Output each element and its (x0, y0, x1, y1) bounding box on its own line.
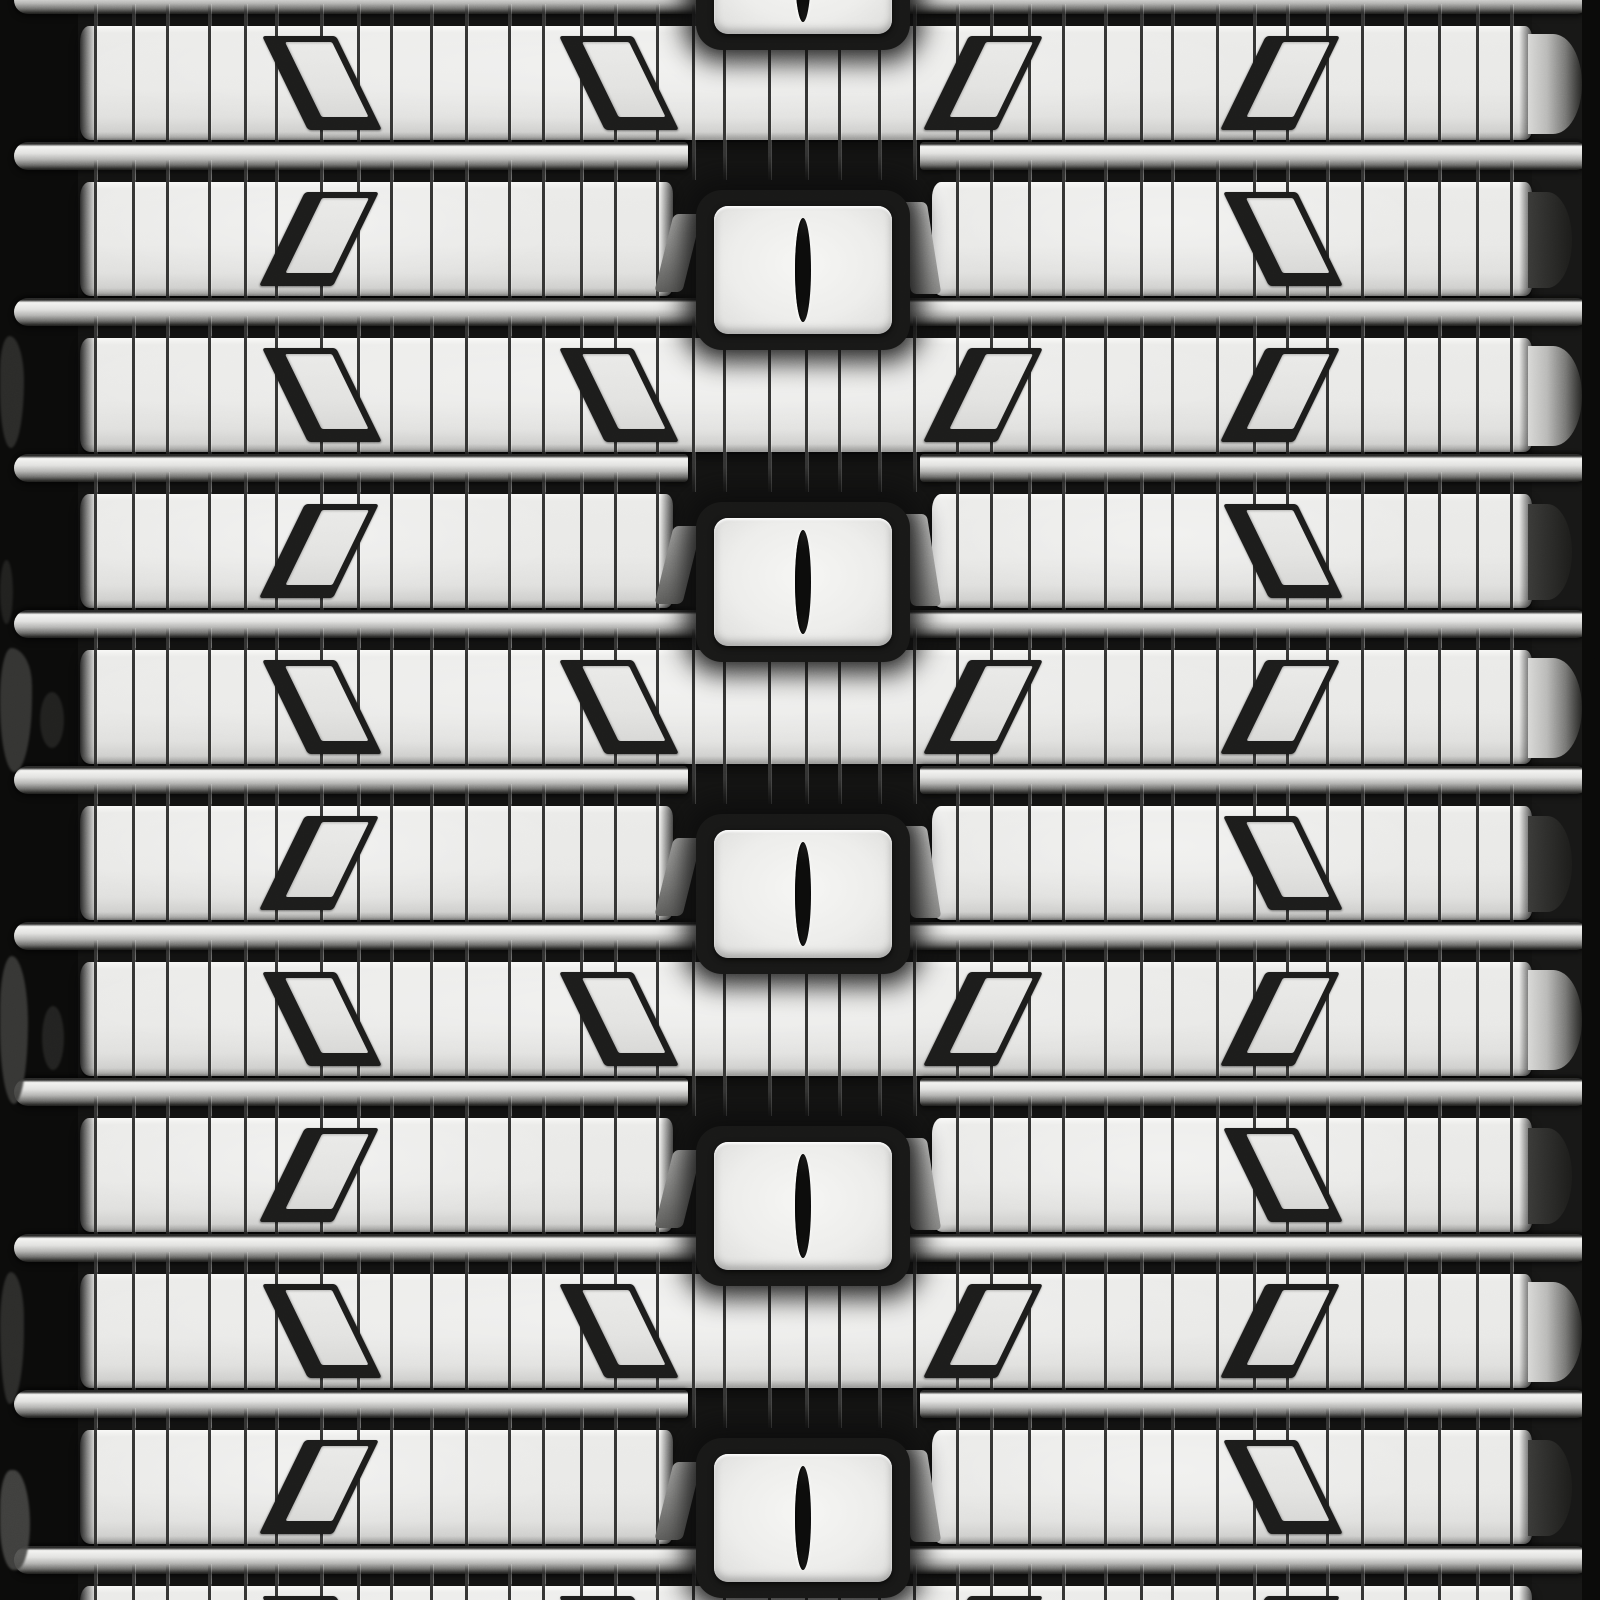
cross-rail (14, 1078, 688, 1106)
sipe-line (1216, 1564, 1219, 1600)
sipe-line (1438, 1564, 1441, 1600)
cross-rail (14, 1390, 688, 1418)
sipe-line (913, 940, 916, 1116)
sipe-line (692, 1252, 695, 1428)
sipe-line (1286, 1564, 1289, 1600)
rubber-blob (0, 560, 13, 624)
drive-lug-slit (795, 218, 811, 322)
sipe-line (542, 1564, 545, 1600)
sipe-line (94, 1564, 97, 1600)
sipe-line (275, 1564, 278, 1600)
sipe-line (614, 1564, 617, 1600)
sipe-line (956, 1564, 959, 1600)
drive-lug-slit (795, 1466, 811, 1570)
sipe-line (1171, 1564, 1174, 1600)
cross-rail (14, 766, 688, 794)
sipe-line (913, 1564, 916, 1600)
sipe-line (692, 940, 695, 1116)
sipe-line (508, 1564, 511, 1600)
sipe-line (913, 316, 916, 492)
sipe-line (390, 1564, 393, 1600)
sipe-line (692, 1564, 695, 1600)
sipe-line (692, 316, 695, 492)
sipe-line (580, 1564, 583, 1600)
cross-rail (14, 142, 688, 170)
sipe-line (913, 4, 916, 180)
sipe-line (1140, 1564, 1143, 1600)
track-right-edge (1582, 0, 1600, 1600)
sipe-line (320, 1564, 323, 1600)
sipe-line (913, 628, 916, 804)
sipe-line (1404, 1564, 1407, 1600)
drive-lug-slit (795, 530, 811, 634)
sipe-line (1253, 1564, 1256, 1600)
sipe-line (244, 1564, 247, 1600)
sipe-line (1326, 1564, 1329, 1600)
sipe-line (430, 1564, 433, 1600)
sipe-line (357, 1564, 360, 1600)
sipe-line (132, 1564, 135, 1600)
sipe-line (692, 628, 695, 804)
sipe-line (1062, 1564, 1065, 1600)
sipe-line (208, 1564, 211, 1600)
drive-lug-slit (795, 1154, 811, 1258)
rubber-blob (42, 1006, 64, 1070)
sipe-line (656, 1564, 659, 1600)
sipe-line (913, 1252, 916, 1428)
track-photo-stage (0, 0, 1600, 1600)
sipe-line (1510, 1564, 1513, 1600)
sipe-line (1028, 1564, 1031, 1600)
sipe-line (1104, 1564, 1107, 1600)
sipe-line (692, 4, 695, 180)
sipe-line (990, 1564, 993, 1600)
drive-lug-slit (795, 842, 811, 946)
sipe-line (1361, 1564, 1364, 1600)
cross-rail (14, 454, 688, 482)
sipe-line (1476, 1564, 1479, 1600)
rubber-blob (40, 692, 64, 748)
sipe-line (166, 1564, 169, 1600)
sipe-line (465, 1564, 468, 1600)
